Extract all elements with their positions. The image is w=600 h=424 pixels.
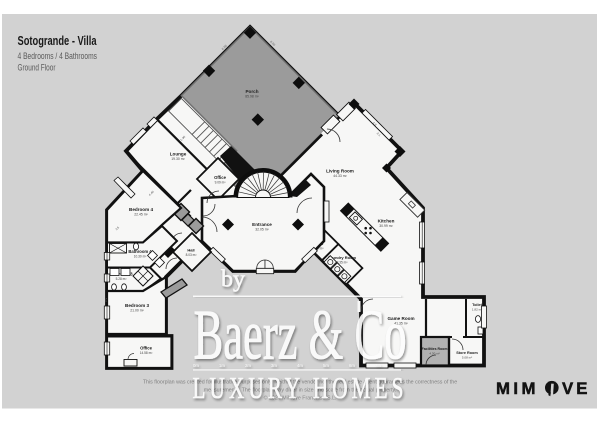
svg-text:Facilities Room: Facilities Room bbox=[422, 347, 448, 351]
svg-text:4m: 4m bbox=[297, 363, 303, 368]
svg-text:VE: VE bbox=[562, 379, 590, 398]
svg-text:Lounge: Lounge bbox=[170, 152, 187, 157]
svg-text:9.09 m²: 9.09 m² bbox=[215, 181, 226, 185]
svg-text:22.45 m²: 22.45 m² bbox=[134, 213, 148, 217]
svg-text:5.08 m²: 5.08 m² bbox=[462, 356, 472, 360]
svg-text:Office: Office bbox=[140, 346, 153, 351]
svg-text:5m: 5m bbox=[323, 363, 329, 368]
svg-text:8.03 m²: 8.03 m² bbox=[186, 253, 197, 257]
svg-text:2m: 2m bbox=[245, 363, 251, 368]
svg-text:5.8: 5.8 bbox=[104, 298, 108, 303]
svg-text:Bathroom 4: Bathroom 4 bbox=[128, 249, 152, 254]
svg-text:85.98 m²: 85.98 m² bbox=[245, 95, 259, 99]
svg-text:Sotogrande - Villa: Sotogrande - Villa bbox=[18, 34, 98, 48]
svg-text:1m: 1m bbox=[219, 363, 225, 368]
svg-text:6m: 6m bbox=[349, 363, 355, 368]
svg-text:LUXURY HOMES: LUXURY HOMES bbox=[193, 370, 408, 405]
svg-text:Office: Office bbox=[214, 175, 227, 180]
svg-text:21.00 m²: 21.00 m² bbox=[130, 309, 144, 313]
svg-text:Hall: Hall bbox=[187, 248, 194, 253]
svg-text:14.58 m²: 14.58 m² bbox=[140, 351, 153, 355]
svg-text:19.30 m²: 19.30 m² bbox=[171, 157, 185, 161]
svg-text:Ground Floor: Ground Floor bbox=[18, 63, 56, 74]
svg-text:MIM: MIM bbox=[496, 379, 539, 398]
svg-text:10.30 m²: 10.30 m² bbox=[134, 255, 147, 259]
svg-text:by: by bbox=[221, 267, 245, 293]
svg-text:Porch: Porch bbox=[245, 89, 258, 94]
svg-text:4 Bedrooms / 4 Bathrooms: 4 Bedrooms / 4 Bathrooms bbox=[18, 51, 98, 62]
svg-text:32.05 m²: 32.05 m² bbox=[255, 228, 269, 232]
svg-text:5.28 m²: 5.28 m² bbox=[116, 277, 127, 281]
svg-text:30.99 m²: 30.99 m² bbox=[379, 224, 393, 228]
svg-text:Store Room: Store Room bbox=[456, 351, 478, 355]
svg-text:0m: 0m bbox=[193, 363, 199, 368]
svg-text:7m: 7m bbox=[375, 363, 381, 368]
svg-text:1.82 m²: 1.82 m² bbox=[472, 308, 482, 312]
svg-text:3m: 3m bbox=[271, 363, 277, 368]
svg-text:Bedroom 4: Bedroom 4 bbox=[129, 207, 153, 212]
svg-text:44.33 m²: 44.33 m² bbox=[333, 174, 347, 178]
svg-text:Living Room: Living Room bbox=[326, 169, 354, 174]
svg-text:Toilet: Toilet bbox=[472, 303, 483, 307]
svg-text:Bedroom 3: Bedroom 3 bbox=[125, 303, 149, 308]
svg-text:Kitchen: Kitchen bbox=[378, 219, 395, 224]
svg-text:Entrance: Entrance bbox=[252, 222, 272, 227]
